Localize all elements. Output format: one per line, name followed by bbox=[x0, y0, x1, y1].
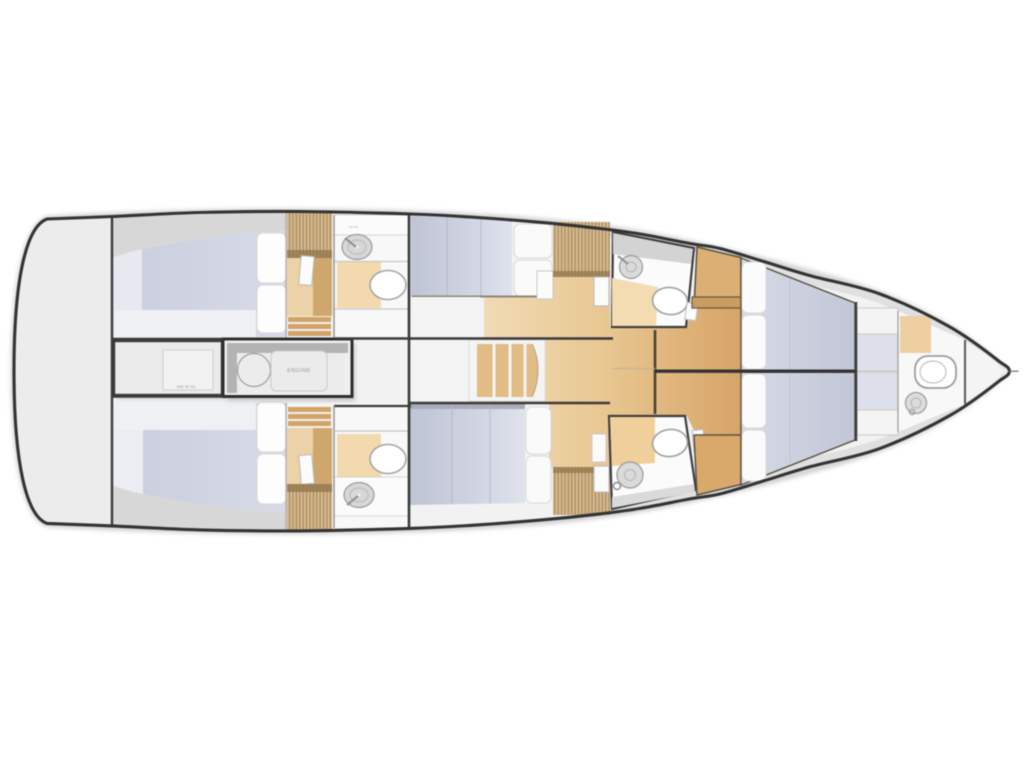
svg-text:xx xx: xx xx bbox=[349, 224, 358, 229]
svg-text:ENGINE: ENGINE bbox=[287, 368, 311, 374]
svg-text:xxx xx xx: xxx xx xx bbox=[177, 384, 196, 389]
